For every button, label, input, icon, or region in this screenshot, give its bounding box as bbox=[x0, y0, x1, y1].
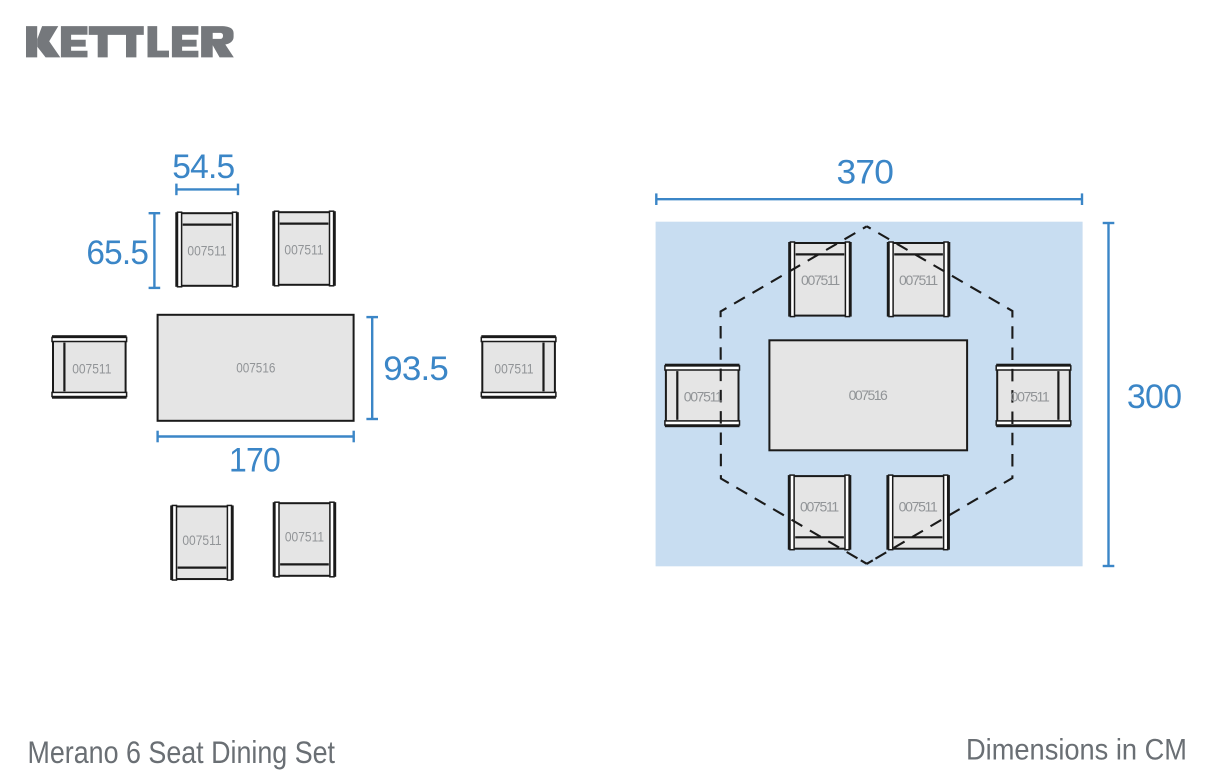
svg-text:370: 370 bbox=[837, 153, 894, 191]
svg-text:007511: 007511 bbox=[899, 272, 938, 288]
svg-text:007516: 007516 bbox=[236, 359, 275, 375]
svg-text:007511: 007511 bbox=[72, 360, 111, 376]
svg-text:007511: 007511 bbox=[187, 243, 226, 259]
svg-text:007511: 007511 bbox=[182, 532, 221, 548]
svg-text:007516: 007516 bbox=[849, 387, 888, 403]
svg-text:007511: 007511 bbox=[494, 360, 533, 376]
svg-text:54.5: 54.5 bbox=[172, 148, 234, 186]
svg-text:007511: 007511 bbox=[1011, 388, 1050, 404]
svg-text:007511: 007511 bbox=[800, 499, 839, 515]
svg-text:65.5: 65.5 bbox=[86, 234, 148, 272]
svg-text:93.5: 93.5 bbox=[383, 350, 448, 388]
svg-text:007511: 007511 bbox=[684, 388, 723, 404]
svg-text:170: 170 bbox=[229, 441, 280, 479]
svg-text:007511: 007511 bbox=[899, 499, 938, 515]
svg-text:007511: 007511 bbox=[285, 529, 324, 545]
svg-text:007511: 007511 bbox=[801, 272, 840, 288]
svg-text:Dimensions in CM: Dimensions in CM bbox=[966, 734, 1187, 767]
svg-text:Merano 6 Seat Dining Set: Merano 6 Seat Dining Set bbox=[28, 734, 336, 770]
svg-text:300: 300 bbox=[1127, 378, 1181, 416]
svg-text:007511: 007511 bbox=[284, 242, 323, 258]
